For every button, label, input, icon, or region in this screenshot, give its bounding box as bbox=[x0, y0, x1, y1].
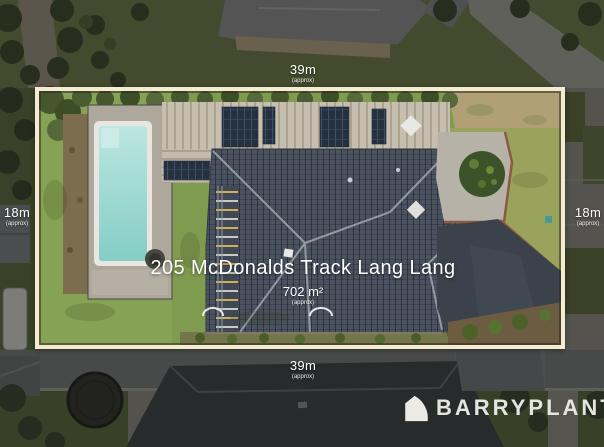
dimension-bottom-approx: (approx) bbox=[290, 374, 316, 380]
solar-panel bbox=[263, 107, 275, 144]
solar-panel bbox=[164, 161, 210, 180]
dimension-top-value: 39m bbox=[290, 63, 316, 76]
dimension-bottom-value: 39m bbox=[290, 359, 316, 372]
dimension-top: 39m (approx) bbox=[290, 63, 316, 84]
dimension-left-value: 18m bbox=[4, 206, 30, 219]
aerial-photo-listing: 39m (approx) 39m (approx) 18m (approx) 1… bbox=[0, 0, 604, 447]
dimension-top-approx: (approx) bbox=[290, 78, 316, 84]
barry-plant-sail-icon bbox=[402, 394, 429, 422]
property-block bbox=[35, 86, 565, 391]
dimension-right-value: 18m bbox=[575, 206, 601, 219]
property-area-value: 702 m² bbox=[283, 285, 323, 298]
solar-panel bbox=[320, 107, 349, 147]
agency-logo: BARRYPLANT bbox=[402, 394, 604, 422]
dimension-left: 18m (approx) bbox=[4, 206, 30, 227]
dimension-right-approx: (approx) bbox=[575, 221, 601, 227]
solar-panel bbox=[372, 109, 386, 144]
property-area: 702 m² (approx) bbox=[283, 285, 323, 306]
dimension-left-approx: (approx) bbox=[4, 221, 30, 227]
dimension-bottom: 39m (approx) bbox=[290, 359, 316, 380]
dimension-right: 18m (approx) bbox=[575, 206, 601, 227]
agency-logo-text: BARRYPLANT bbox=[436, 397, 604, 419]
garden-bush bbox=[459, 151, 505, 197]
property-area-approx: (approx) bbox=[283, 300, 323, 306]
property-address-label: 205 McDonalds Track Lang Lang bbox=[150, 257, 455, 280]
solar-panel bbox=[222, 107, 258, 147]
